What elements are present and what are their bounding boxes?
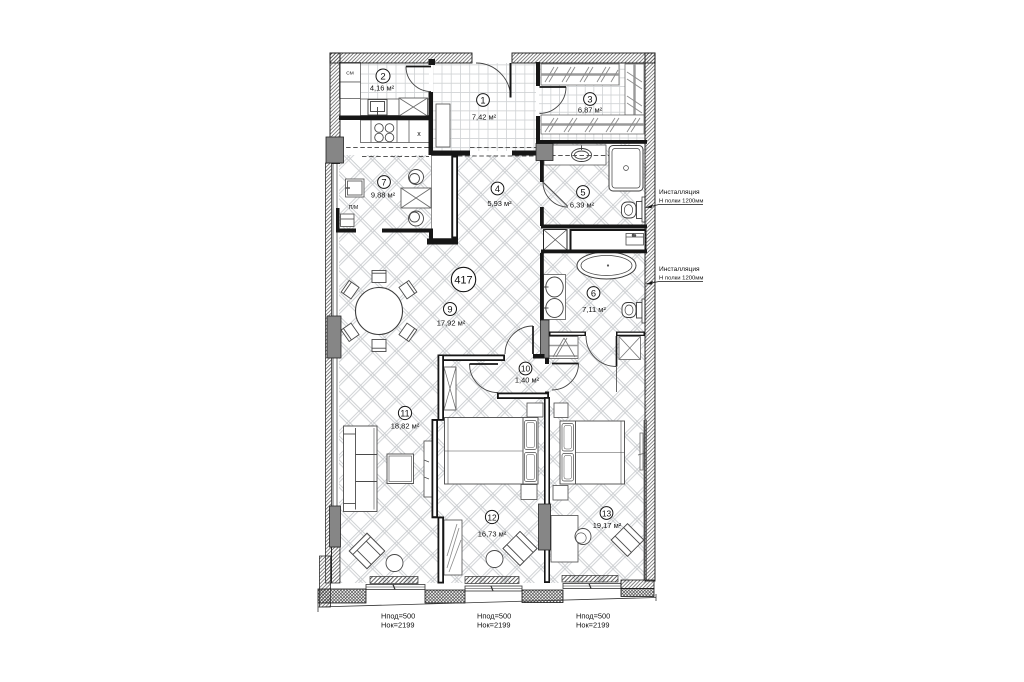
svg-text:Нпод=500: Нпод=500 bbox=[381, 612, 415, 621]
svg-text:18,82 м²: 18,82 м² bbox=[391, 422, 420, 431]
svg-text:13: 13 bbox=[602, 508, 612, 518]
svg-text:17,92 м²: 17,92 м² bbox=[437, 319, 466, 328]
svg-text:6,87 м²: 6,87 м² bbox=[578, 106, 603, 115]
svg-text:Н полки 1200мм: Н полки 1200мм bbox=[659, 199, 703, 205]
svg-text:СМ: СМ bbox=[346, 71, 353, 77]
svg-text:Нок=2199: Нок=2199 bbox=[576, 621, 609, 630]
svg-text:6: 6 bbox=[591, 288, 596, 298]
svg-text:1,40 м²: 1,40 м² bbox=[515, 376, 540, 385]
svg-text:7: 7 bbox=[381, 177, 386, 187]
svg-text:3: 3 bbox=[587, 94, 592, 104]
svg-text:9: 9 bbox=[447, 304, 452, 314]
svg-text:5: 5 bbox=[580, 187, 585, 197]
svg-text:12: 12 bbox=[487, 512, 497, 522]
svg-text:417: 417 bbox=[454, 275, 472, 287]
svg-text:Инсталляция: Инсталляция bbox=[659, 189, 700, 196]
svg-text:Нок=2199: Нок=2199 bbox=[381, 621, 414, 630]
svg-text:Н полки 1200мм: Н полки 1200мм bbox=[659, 276, 703, 282]
svg-text:П/М: П/М bbox=[349, 205, 359, 211]
svg-text:9,88 м²: 9,88 м² bbox=[371, 191, 396, 200]
svg-text:4: 4 bbox=[495, 184, 500, 194]
svg-text:Нпод=500: Нпод=500 bbox=[477, 612, 511, 621]
svg-text:16,73 м²: 16,73 м² bbox=[478, 530, 507, 539]
svg-text:7,11 м²: 7,11 м² bbox=[582, 305, 606, 314]
svg-text:1: 1 bbox=[480, 95, 485, 105]
svg-text:2: 2 bbox=[380, 71, 385, 82]
svg-text:6,39 м²: 6,39 м² bbox=[570, 201, 595, 210]
svg-text:4,16 м²: 4,16 м² bbox=[370, 84, 395, 93]
svg-text:Нпод=500: Нпод=500 bbox=[576, 612, 610, 621]
svg-text:Нок=2199: Нок=2199 bbox=[477, 621, 510, 630]
svg-text:19,17 м²: 19,17 м² bbox=[593, 521, 622, 530]
svg-text:Инсталляция: Инсталляция bbox=[659, 266, 700, 273]
svg-text:11: 11 bbox=[400, 408, 409, 418]
svg-text:10: 10 bbox=[521, 364, 531, 374]
svg-text:x: x bbox=[417, 131, 421, 138]
svg-text:7,42 м²: 7,42 м² bbox=[472, 113, 497, 122]
svg-text:5,93 м²: 5,93 м² bbox=[487, 199, 512, 208]
svg-text:бо: бо bbox=[632, 233, 636, 237]
